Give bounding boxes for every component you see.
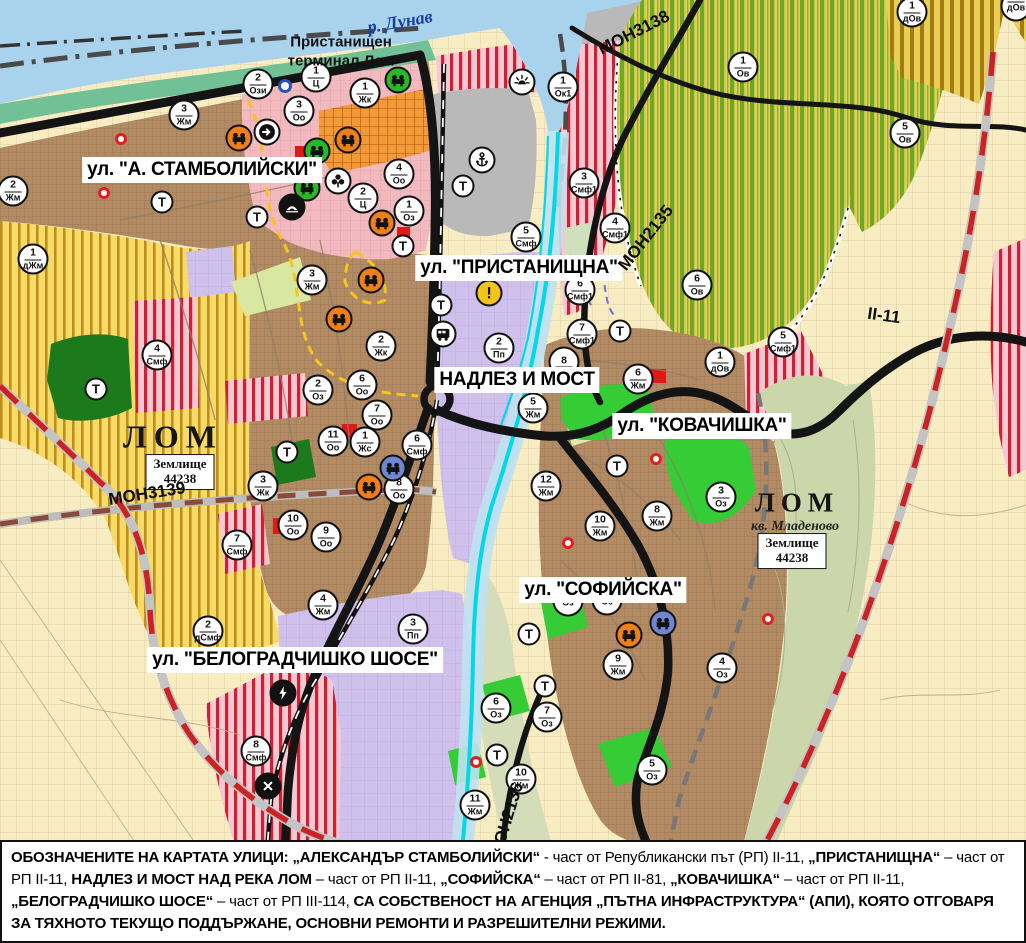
info-bar-segment: „СОФИЙСКА“ [440,871,540,888]
info-bar: ОБОЗНАЧЕНИТЕ НА КАРТАТА УЛИЦИ: „АЛЕКСАНД… [0,840,1026,943]
info-bar-segment: – част от РП III-114, [213,893,354,910]
info-bar-segment: - част от Републикански път (РП) II-11, [540,849,808,866]
info-bar-segment: „КОВАЧИШКА“ [670,871,780,888]
info-bar-segment: – част от РП II-81, [541,871,671,888]
zoning-map: 2Ози1Ц3Оо1Жк3Жм2Жм1дЖм3Жм4Оо2Ц1Оз5Смф3См… [0,0,1026,943]
info-bar-segment: – част от РП II-11, [780,871,904,888]
info-bar-segment: „ПРИСТАНИЩНА“ [808,849,940,866]
info-bar-segment: НАДЛЕЗ И МОСТ НАД РЕКА ЛОМ [71,871,312,888]
info-bar-segment: „БЕЛОГРАДЧИШКО ШОСЕ“ [11,893,213,910]
map-graphic [0,0,1026,943]
info-bar-segment: – част от РП II-11, [312,871,440,888]
info-bar-segment: ОБОЗНАЧЕНИТЕ НА КАРТАТА УЛИЦИ: „АЛЕКСАНД… [11,849,540,866]
